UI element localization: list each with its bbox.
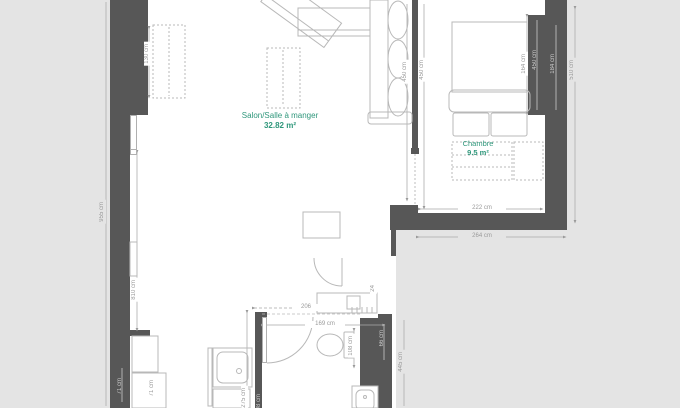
kitchen-fridge (132, 336, 158, 372)
desk (303, 212, 340, 238)
dim-108-shower: 108 cm (256, 392, 263, 408)
entry-door-stop (130, 149, 137, 155)
rug-table (267, 48, 300, 108)
chambre-room-area: 9.5 m² (438, 149, 518, 157)
dim-71a: 71 cm (117, 376, 124, 396)
washbasin (352, 386, 378, 408)
dim-450-salon: 450 cm (402, 60, 409, 84)
dim-66: 66 cm (379, 328, 386, 348)
salon-room-area: 32.82 m² (190, 121, 370, 130)
bed (449, 22, 530, 136)
hall-door-arc (314, 258, 342, 286)
dim-164-bed: 164 cm (521, 52, 528, 76)
radiator (130, 242, 137, 276)
dim-264: 264 cm (458, 233, 506, 240)
dim-206: 206 (293, 304, 319, 311)
dim-sideboard: 130 cm (144, 42, 151, 66)
kitchen-counter (317, 293, 377, 313)
sideboard (153, 25, 185, 98)
dim-810: 810 cm (131, 278, 138, 302)
dim-222: 222 cm (458, 205, 506, 212)
salon-room-name: Salon/Salle à manger (190, 111, 370, 120)
dim-510: 510 cm (569, 58, 576, 82)
dim-108-wc: 108 cm (348, 334, 355, 358)
dim-955: 955 cm (99, 200, 106, 224)
chambre-room-name: Chambre (438, 140, 518, 148)
dim-169: 169 cm (305, 321, 345, 328)
armchair (261, 0, 342, 47)
floor-plan-canvas: Salon/Salle à manger 32.82 m² Chambre 9.… (0, 0, 680, 408)
sofa (298, 0, 412, 124)
dim-184-wall: 184 cm (550, 52, 557, 76)
dim-445: 445 cm (398, 350, 405, 374)
bath-door-leaf (262, 317, 267, 363)
dim-450-chambre: 450 cm (419, 58, 426, 82)
dim-71b: 71 cm (149, 378, 156, 398)
entry-door-leaf (130, 115, 137, 152)
dim-275: 275 cm (241, 386, 248, 408)
dim-24: 24 (370, 283, 377, 294)
dim-450-wall: 450 cm (532, 48, 539, 72)
